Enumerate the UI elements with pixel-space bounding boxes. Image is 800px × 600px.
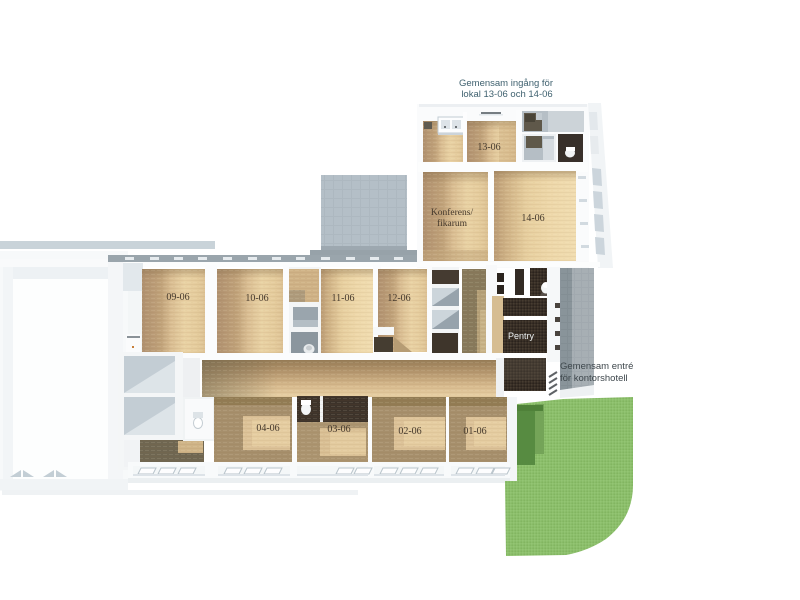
svg-text:Pentry: Pentry — [508, 331, 535, 341]
svg-text:Konferens/: Konferens/ — [431, 207, 474, 218]
svg-text:01-06: 01-06 — [463, 426, 486, 437]
svg-text:för kontorshotell: för kontorshotell — [560, 373, 628, 384]
svg-text:11-06: 11-06 — [332, 293, 355, 304]
svg-text:09-06: 09-06 — [166, 292, 189, 303]
svg-text:03-06: 03-06 — [327, 424, 350, 435]
svg-text:13-06: 13-06 — [477, 142, 500, 153]
svg-text:14-06: 14-06 — [521, 213, 544, 224]
svg-text:Gemensam ingång för: Gemensam ingång för — [459, 78, 553, 89]
svg-text:12-06: 12-06 — [387, 293, 410, 304]
svg-text:fikarum: fikarum — [437, 218, 468, 229]
svg-text:lokal 13-06 och 14-06: lokal 13-06 och 14-06 — [461, 89, 552, 100]
svg-text:04-06: 04-06 — [256, 423, 279, 434]
svg-text:02-06: 02-06 — [398, 426, 421, 437]
svg-text:Gemensam entré: Gemensam entré — [560, 361, 633, 372]
svg-text:10-06: 10-06 — [245, 293, 268, 304]
